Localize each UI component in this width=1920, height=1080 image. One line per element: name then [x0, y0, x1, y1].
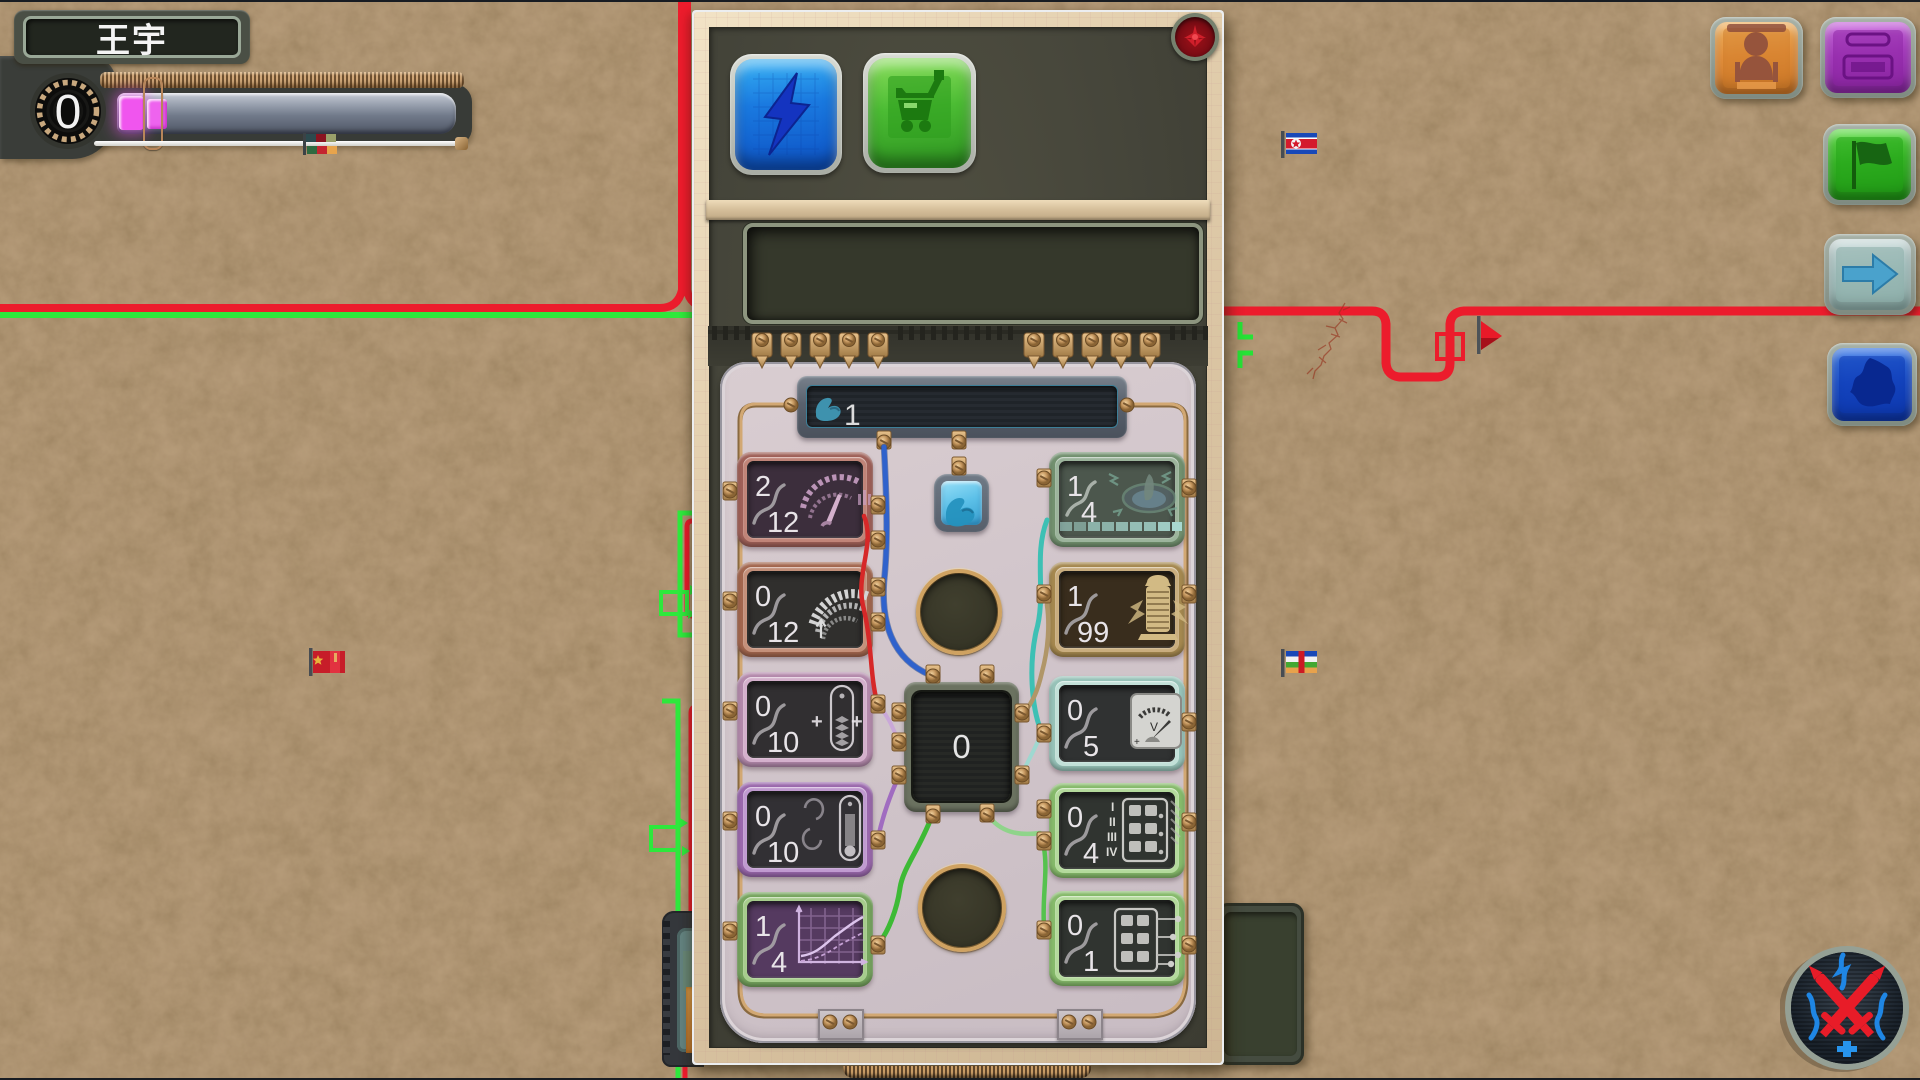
svg-text:0: 0 — [755, 691, 771, 723]
svg-text:4: 4 — [771, 947, 787, 979]
svg-text:2: 2 — [755, 471, 771, 503]
svg-text:+: + — [851, 711, 863, 733]
svg-text:II: II — [1109, 815, 1116, 829]
svg-text:0: 0 — [755, 801, 771, 833]
svg-text:1: 1 — [1083, 946, 1099, 978]
svg-text:V: V — [1150, 720, 1158, 734]
svg-text:1: 1 — [844, 399, 861, 432]
svg-text:1: 1 — [1067, 581, 1083, 613]
svg-text:III: III — [1107, 830, 1117, 844]
svg-text:IV: IV — [1106, 845, 1117, 859]
svg-text:4: 4 — [1083, 838, 1099, 870]
svg-text:5: 5 — [1083, 731, 1099, 763]
svg-text:1: 1 — [755, 911, 771, 943]
svg-text:10: 10 — [767, 727, 799, 759]
svg-text:99: 99 — [1077, 617, 1109, 649]
svg-text:12: 12 — [767, 617, 799, 649]
svg-text:10: 10 — [767, 837, 799, 869]
svg-text:12: 12 — [767, 507, 799, 539]
svg-text:0: 0 — [755, 581, 771, 613]
svg-text:0: 0 — [1067, 910, 1083, 942]
svg-text:0: 0 — [55, 86, 82, 139]
svg-text:+: + — [811, 711, 823, 733]
svg-text:0: 0 — [1067, 695, 1083, 727]
svg-text:+: + — [1134, 737, 1140, 748]
svg-text:I: I — [1111, 800, 1114, 814]
svg-text:0: 0 — [1067, 802, 1083, 834]
